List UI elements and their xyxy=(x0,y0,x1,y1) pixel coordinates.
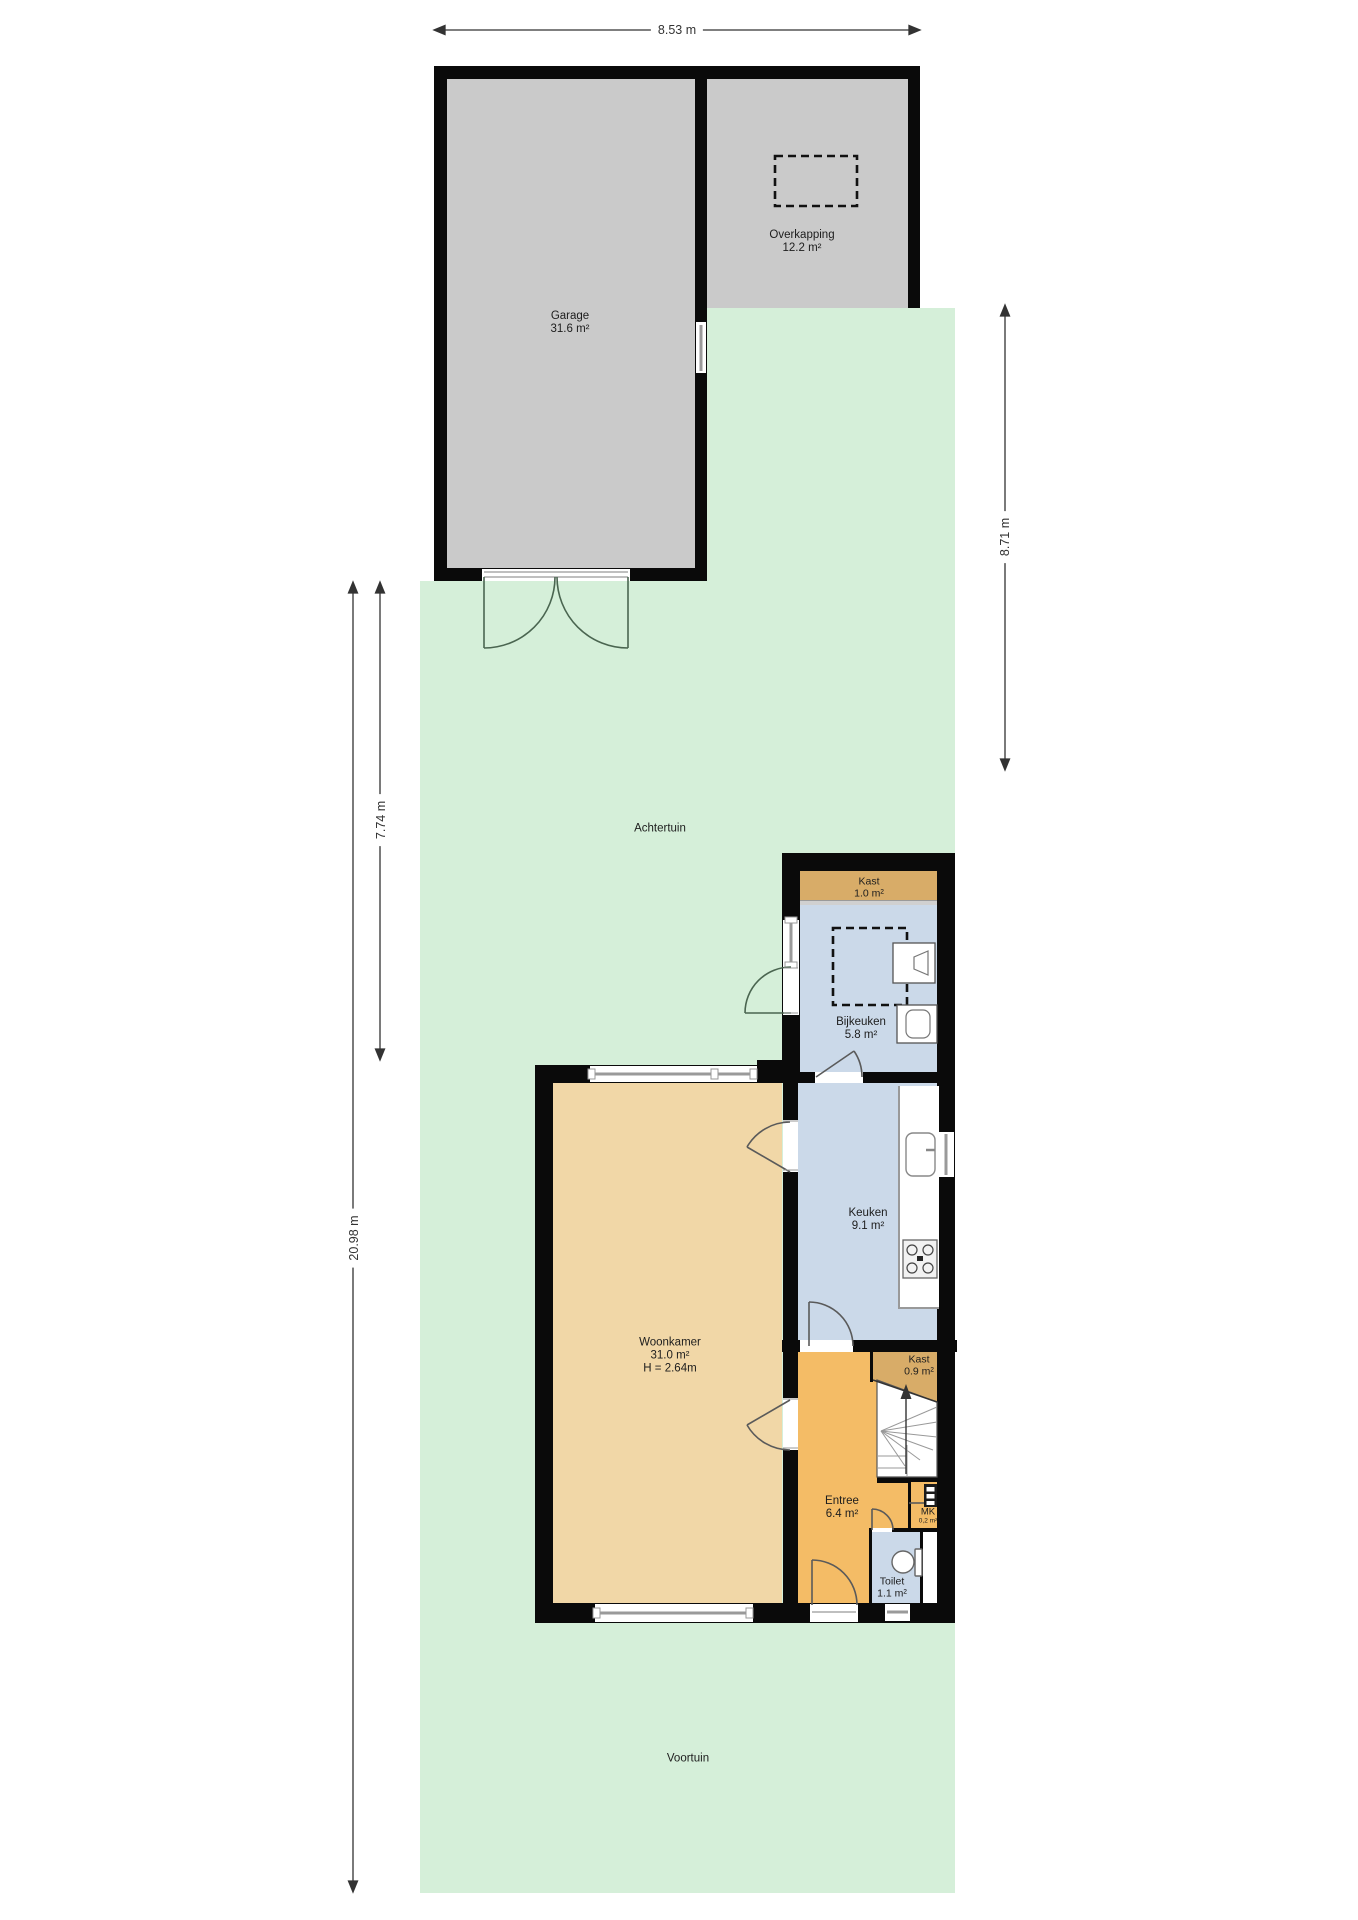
woonkamer-bottom-window xyxy=(595,1604,753,1622)
divider-entree-woonkamer-b xyxy=(783,1450,798,1603)
keuken-entree-door-opening xyxy=(800,1340,853,1352)
front-door-opening xyxy=(810,1604,858,1622)
keuken-woonkamer-door-opening xyxy=(783,1120,798,1172)
house-left-wall xyxy=(535,1065,553,1623)
toilet-label: Toilet 1.1 m² xyxy=(877,1577,907,1600)
meterkast-label: MK 0,2 m² xyxy=(919,1508,937,1525)
keuken-label: Keuken 9.1 m² xyxy=(848,1207,887,1233)
house-right-wall xyxy=(937,853,955,1623)
garage-door-opening xyxy=(482,569,630,581)
overkapping-label: Overkapping 12.2 m² xyxy=(769,229,834,255)
overkapping-floor xyxy=(707,79,908,308)
keuken-window xyxy=(938,1132,954,1177)
bijkeuken-floor xyxy=(800,905,937,1072)
kast-trap-left-wall xyxy=(870,1352,873,1382)
kast-trap-label: Kast 0.9 m² xyxy=(904,1355,934,1378)
bijkeuken-label: Bijkeuken 5.8 m² xyxy=(836,1016,886,1042)
woonkamer-label: Woonkamer 31.0 m² H = 2.64m xyxy=(639,1337,701,1376)
divider-entree-woonkamer-a xyxy=(783,1352,798,1398)
wall-junction xyxy=(757,1060,800,1083)
dim-left-outer: 20.98 m xyxy=(346,1208,362,1267)
entree-woonkamer-door-opening xyxy=(783,1398,798,1450)
floorplan-canvas: 8.53 m 8.71 m 7.74 m 20.98 m Achtertuin … xyxy=(0,0,1358,1920)
garden-front-label: Voortuin xyxy=(667,1753,709,1766)
toilet-left-wall xyxy=(869,1532,872,1603)
dim-left-inner: 7.74 m xyxy=(373,794,389,846)
bijkeuken-keuken-door-opening xyxy=(815,1072,863,1083)
utility-top-wall xyxy=(782,853,955,871)
dim-right: 8.71 m xyxy=(997,511,1013,563)
toilet-right-wall xyxy=(920,1532,923,1603)
woonkamer-top-window xyxy=(590,1066,757,1082)
garden-back-label: Achtertuin xyxy=(634,823,686,836)
dim-top: 8.53 m xyxy=(651,22,703,38)
kast-boven-label: Kast 1.0 m² xyxy=(854,877,884,900)
garden-back-right xyxy=(707,308,955,581)
bijkeuken-window xyxy=(783,920,799,967)
kitchen-counter xyxy=(898,1086,939,1309)
meterkast-left-wall xyxy=(908,1482,911,1528)
bijkeuken-backdoor-opening xyxy=(783,967,799,1015)
toilet-side-void xyxy=(923,1532,937,1603)
garage-label: Garage 31.6 m² xyxy=(551,310,590,336)
entree-label: Entree 6.4 m² xyxy=(825,1495,859,1521)
toilet-window xyxy=(885,1604,910,1621)
divider-keuken-woonkamer-a xyxy=(783,1083,798,1120)
divider-keuken-woonkamer-b xyxy=(783,1172,798,1352)
garage-side-window xyxy=(696,322,706,373)
